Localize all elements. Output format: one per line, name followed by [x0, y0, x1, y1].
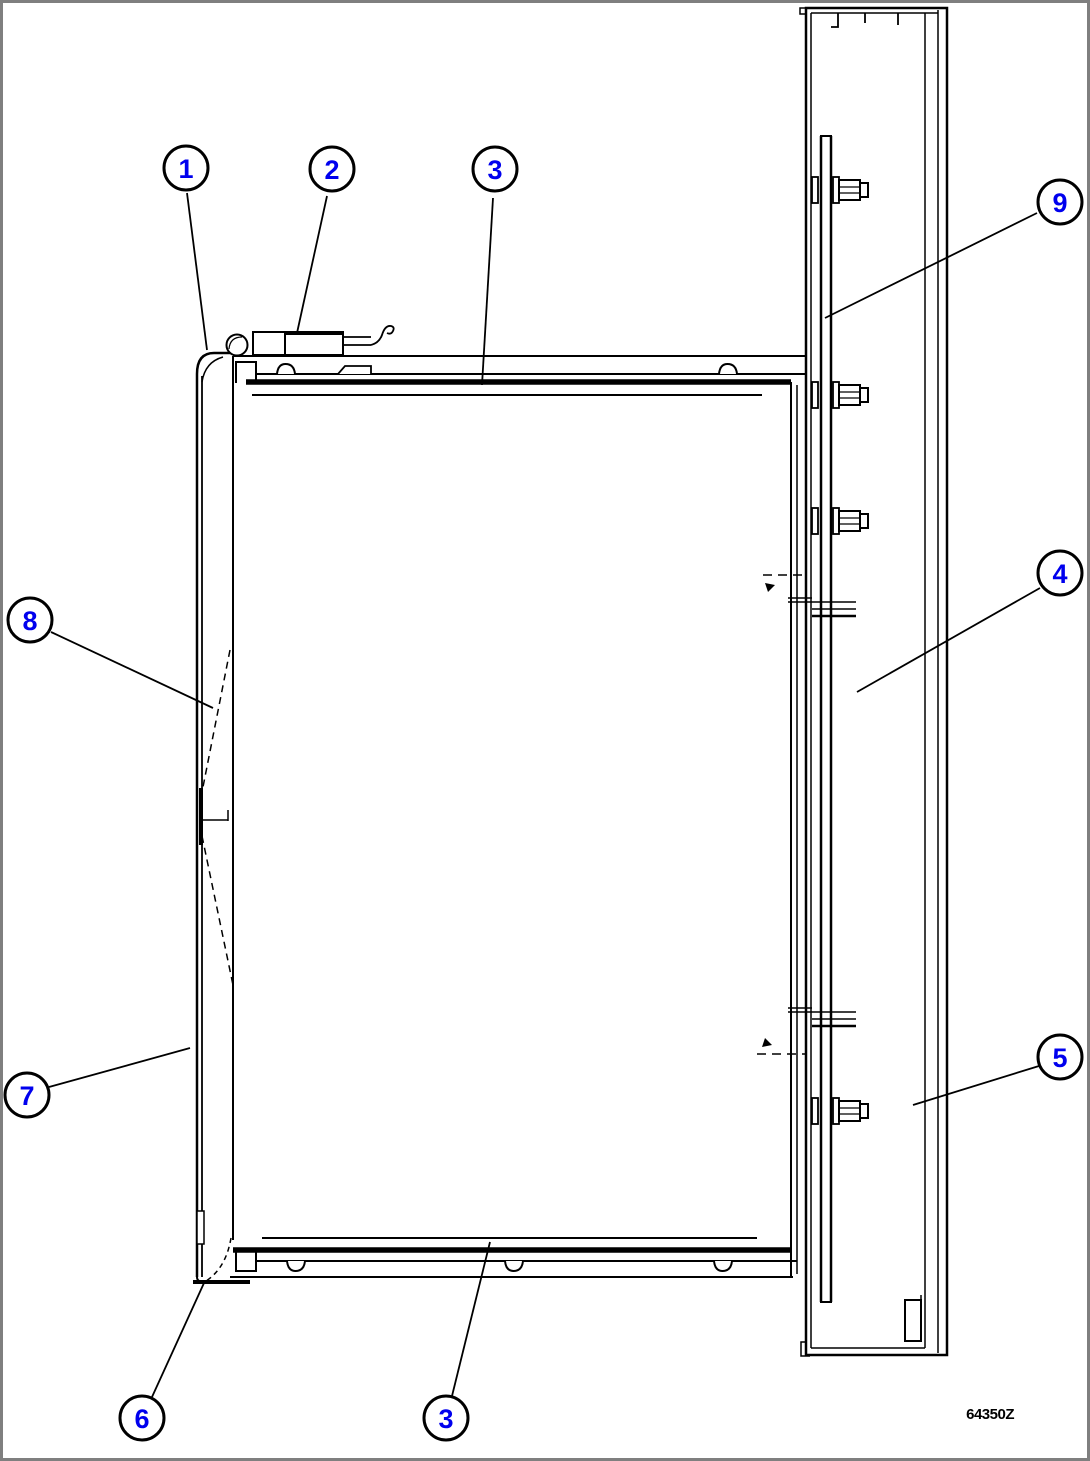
- callout-3-top: 3: [473, 147, 517, 191]
- callout-4-label: 4: [1052, 559, 1067, 589]
- callout-8: 8: [8, 598, 52, 642]
- drawing-id: 64350Z: [966, 1406, 1014, 1423]
- latch-body: [253, 332, 343, 355]
- callout-3-top-label: 3: [487, 155, 502, 185]
- top-rail: [233, 356, 806, 395]
- door-right-edge: [791, 382, 797, 1277]
- latch-lever: [371, 326, 394, 345]
- callout-3-bottom: 3: [424, 1396, 468, 1440]
- callout-7-label: 7: [19, 1081, 34, 1111]
- callout-9-label: 9: [1052, 188, 1067, 218]
- parts-diagram: 1 2 3 9 4 8 7 5: [0, 0, 1090, 1461]
- callout-6: 6: [120, 1396, 164, 1440]
- diagram-page: 1 2 3 9 4 8 7 5: [0, 0, 1090, 1461]
- panel-keeper: [905, 1300, 921, 1341]
- callout-1: 1: [164, 146, 208, 190]
- centerline-arrow-lower: [757, 1038, 807, 1054]
- callout-5-label: 5: [1052, 1043, 1067, 1073]
- latch-assembly: [227, 326, 394, 356]
- bottom-rail: [230, 1238, 797, 1277]
- callout-7: 7: [5, 1073, 49, 1117]
- callout-5: 5: [1038, 1035, 1082, 1079]
- callout-2: 2: [310, 147, 354, 191]
- door-frame-left: [193, 353, 250, 1282]
- callout-4: 4: [1038, 551, 1082, 595]
- callout-2-label: 2: [324, 155, 339, 185]
- callout-9: 9: [1038, 180, 1082, 224]
- callout-1-label: 1: [178, 154, 193, 184]
- centerline-arrow-upper: [763, 575, 807, 592]
- callout-8-label: 8: [22, 606, 37, 636]
- right-panel: [757, 8, 947, 1356]
- callout-3-bottom-label: 3: [438, 1404, 453, 1434]
- callout-6-label: 6: [134, 1404, 149, 1434]
